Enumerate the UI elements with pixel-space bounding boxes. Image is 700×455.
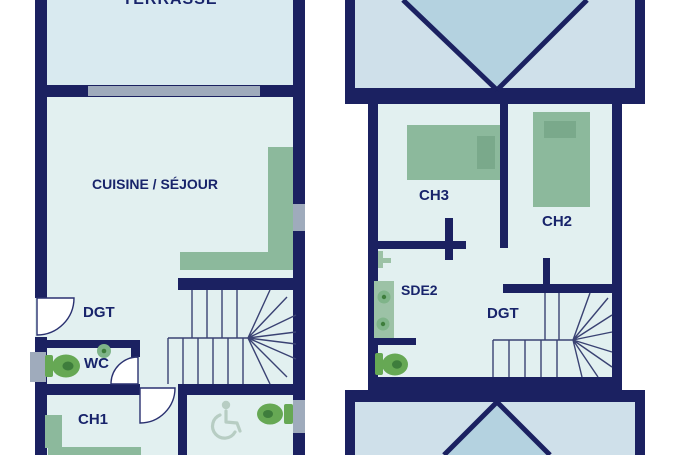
kitchen-counter-icon-horizontal: [180, 252, 293, 270]
roof-top-border-bottom: [345, 88, 645, 104]
roof-bottom-fill: [355, 402, 635, 455]
room-label-sde2: SDE2: [401, 282, 438, 298]
window-icon-bathroom: [293, 400, 305, 433]
roof-top-border-left: [345, 0, 355, 88]
roof-bottom-border-right: [635, 390, 645, 455]
room-label-dgt-ground: DGT: [83, 304, 115, 321]
terrasse-room: [47, 0, 293, 85]
wall-bottom-right: [178, 384, 305, 395]
wall-ch3-ch2-divider: [500, 104, 508, 248]
upper-wall-right: [612, 104, 622, 390]
roof-top-fill: [355, 0, 635, 88]
roof-bottom-border-left: [345, 390, 355, 455]
room-label-cuisine-sejour: CUISINE / SÉJOUR: [92, 176, 218, 192]
wall-sde2-stub: [445, 218, 453, 260]
window-icon-terrasse: [88, 86, 260, 96]
roof-bottom-border-top: [345, 390, 645, 402]
roof-top-border-right: [635, 0, 645, 88]
window-icon-wc: [30, 352, 46, 382]
wall-wc-top: [35, 340, 138, 348]
room-label-ch3: CH3: [419, 187, 449, 204]
room-label-wc: WC: [84, 355, 109, 372]
ch2-bed-pillow: [544, 121, 576, 138]
wall-cuisine-bottom: [178, 278, 305, 290]
ch1-wardrobe: [45, 415, 62, 448]
floor-plan-canvas: TERRASSE CUISINE / SÉJOUR DGT WC CH1: [0, 0, 700, 455]
wall-stair-stub: [543, 258, 550, 293]
room-label-dgt-upper: DGT: [487, 305, 519, 322]
room-label-ch2: CH2: [542, 213, 572, 230]
wall-left-upper: [35, 0, 47, 298]
window-icon-cuisine: [293, 204, 305, 231]
upper-wall-left: [368, 104, 378, 390]
ch3-bed-pillow: [477, 136, 495, 169]
wall-wc-right-stub: [131, 340, 140, 357]
wall-sde2-lower: [378, 338, 416, 345]
wall-ch1-bath-divider: [178, 384, 187, 455]
ch1-bed-icon: [48, 447, 141, 455]
wall-bottom-left: [35, 384, 140, 395]
wall-stair-top: [503, 284, 612, 293]
room-label-ch1: CH1: [78, 411, 108, 428]
room-label-terrasse: TERRASSE: [104, 0, 236, 9]
upper-wall-bottom: [368, 377, 622, 390]
